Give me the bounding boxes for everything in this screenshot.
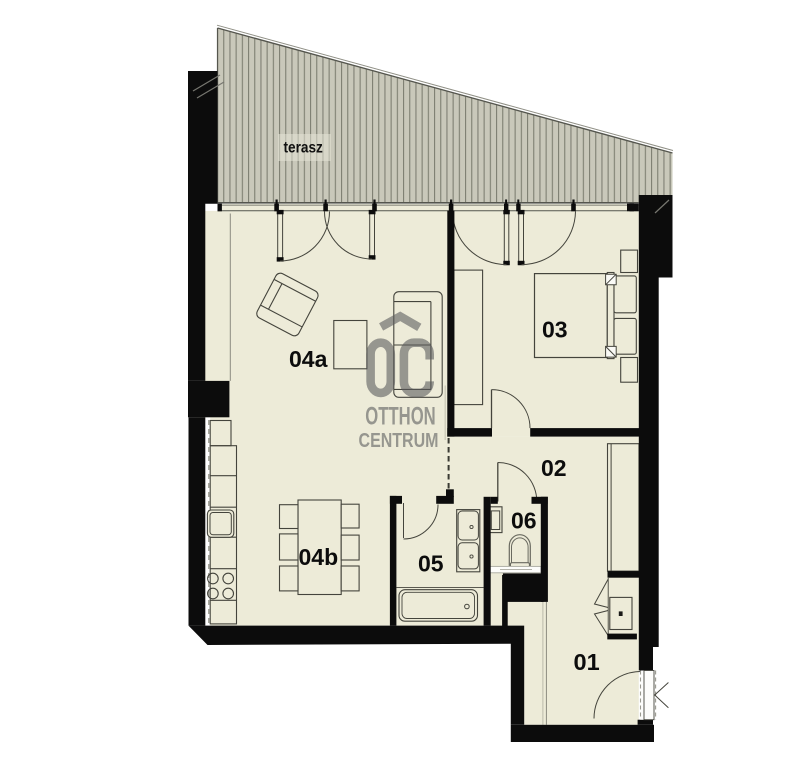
svg-text:CENTRUM: CENTRUM	[359, 429, 439, 451]
svg-text:02: 02	[541, 455, 567, 481]
svg-text:06: 06	[511, 508, 537, 534]
svg-text:01: 01	[574, 649, 600, 675]
svg-text:OTTHON: OTTHON	[365, 402, 435, 430]
svg-text:05: 05	[418, 551, 444, 577]
svg-text:04b: 04b	[299, 544, 339, 570]
svg-text:terasz: terasz	[284, 140, 323, 157]
svg-text:03: 03	[542, 317, 568, 343]
svg-text:04a: 04a	[289, 346, 328, 372]
